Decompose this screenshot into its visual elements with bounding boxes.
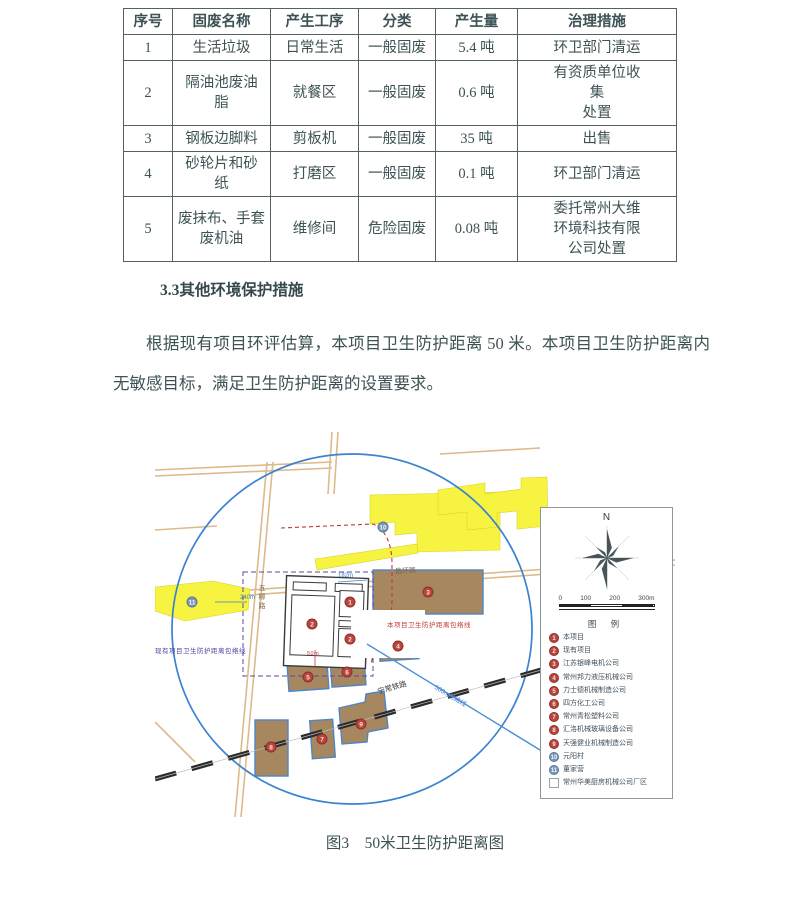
legend-item: 8汇洛机械玻璃设备公司	[549, 725, 668, 735]
table-cell: 一般固废	[359, 126, 436, 152]
legend-label: 四方化工公司	[563, 699, 605, 709]
table-header-row: 序号固废名称产生工序分类产生量治理措施	[124, 9, 677, 35]
table-row: 2隔油池废油 脂就餐区一般固废0.6 吨有资质单位收 集 处置	[124, 61, 677, 126]
railway-centerline	[155, 659, 580, 779]
map-marker-10: 10	[378, 522, 389, 533]
legend-marker-icon: 9	[549, 739, 559, 749]
table-cell: 一般固废	[359, 152, 436, 197]
legend-marker-icon: 7	[549, 712, 559, 722]
legend-title: 图 例	[541, 618, 672, 630]
table-cell: 剪板机	[271, 126, 359, 152]
legend-item: 10元阳村	[549, 752, 668, 762]
legend-marker-icon: 4	[549, 673, 559, 683]
column-header: 固废名称	[173, 9, 271, 35]
table-cell: 2	[124, 61, 173, 126]
wind-rose-icon	[572, 523, 642, 593]
table-cell: 砂轮片和砂 纸	[173, 152, 271, 197]
table-cell: 出售	[518, 126, 677, 152]
table-cell: 危险固废	[359, 197, 436, 262]
table-cell: 隔油池废油 脂	[173, 61, 271, 126]
legend-item: 3江苏银峰电机公司	[549, 659, 668, 669]
legend-label: 江苏银峰电机公司	[563, 659, 619, 669]
legend-label: 力士德机械制造公司	[563, 686, 626, 696]
section-3-3-heading: 3.3其他环境保护措施	[160, 278, 794, 300]
table-cell: 0.08 吨	[436, 197, 518, 262]
legend-marker-icon: 8	[549, 725, 559, 735]
map-marker-5: 5	[303, 672, 314, 683]
legend-label: 常州华美厨房机械公司厂区	[563, 778, 647, 788]
legend-item: 5力士德机械制造公司	[549, 686, 668, 696]
scale-tick: 300m	[638, 595, 654, 602]
table-cell: 环卫部门清运	[518, 152, 677, 197]
legend-label: 汇洛机械玻璃设备公司	[563, 725, 633, 735]
solid-waste-table: 序号固废名称产生工序分类产生量治理措施 1生活垃圾日常生活一般固废5.4 吨环卫…	[123, 8, 677, 262]
legend-list: 1本项目2现有项目3江苏银峰电机公司4常州邦力液压机械公司5力士德机械制造公司6…	[541, 633, 672, 788]
north-label: N	[541, 512, 672, 523]
table-cell: 有资质单位收 集 处置	[518, 61, 677, 126]
table-cell: 0.6 吨	[436, 61, 518, 126]
legend-marker-icon: 11	[549, 765, 559, 775]
legend-marker-icon: 10	[549, 752, 559, 762]
legend-label: 天强健业机械制造公司	[563, 739, 633, 749]
legend-item: 1本项目	[549, 633, 668, 643]
map-marker-7: 7	[317, 734, 328, 745]
legend-marker-icon: 5	[549, 686, 559, 696]
table-cell: 4	[124, 152, 173, 197]
table-cell: 打磨区	[271, 152, 359, 197]
protection-distance-map: 昌环路 五柳路 宁常铁路 500m包络线 本项目卫生防护距离包络线 现有项目卫生…	[155, 432, 675, 817]
table-cell: 5.4 吨	[436, 35, 518, 61]
white-label-box	[351, 610, 425, 658]
table-cell: 日常生活	[271, 35, 359, 61]
column-header: 分类	[359, 9, 436, 35]
section-3-3-paragraph: 根据现有项目环评估算，本项目卫生防护距离 50 米。本项目卫生防护距离内无敏感目…	[113, 324, 710, 404]
table-cell: 3	[124, 126, 173, 152]
legend-label: 常州邦力液压机械公司	[563, 673, 633, 683]
map-marker-4: 4	[393, 641, 404, 652]
scale-bar: 0 100 200 300m	[559, 595, 655, 610]
legend-label: 常州青松塑料公司	[563, 712, 619, 722]
table-cell: 环卫部门清运	[518, 35, 677, 61]
column-header: 产生工序	[271, 9, 359, 35]
legend-item: 9天强健业机械制造公司	[549, 739, 668, 749]
legend-item: 11董家营	[549, 765, 668, 775]
map-marker-1: 1	[345, 597, 356, 608]
document-page: 序号固废名称产生工序分类产生量治理措施 1生活垃圾日常生活一般固废5.4 吨环卫…	[0, 8, 794, 909]
legend-marker-icon: 3	[549, 659, 559, 669]
legend-item: 6四方化工公司	[549, 699, 668, 709]
column-header: 序号	[124, 9, 173, 35]
table-cell: 一般固废	[359, 61, 436, 126]
scale-tick: 200	[609, 595, 620, 602]
legend-label: 本项目	[563, 633, 584, 643]
table-cell: 钢板边脚料	[173, 126, 271, 152]
table-cell: 1	[124, 35, 173, 61]
map-marker-2: 2	[307, 619, 318, 630]
scale-tick: 100	[580, 595, 591, 602]
table-cell: 5	[124, 197, 173, 262]
table-cell: 生活垃圾	[173, 35, 271, 61]
legend-label: 董家营	[563, 765, 584, 775]
table-row: 1生活垃圾日常生活一般固废5.4 吨环卫部门清运	[124, 35, 677, 61]
map-legend-panel: N 0 100	[540, 507, 673, 799]
table-row: 4砂轮片和砂 纸打磨区一般固废0.1 吨环卫部门清运	[124, 152, 677, 197]
table-row: 5废抹布、手套 废机油维修间危险固废0.08 吨委托常州大维 环境科技有限 公司…	[124, 197, 677, 262]
map-marker-11: 11	[187, 597, 198, 608]
legend-label: 现有项目	[563, 646, 591, 656]
map-marker-2: 2	[345, 634, 356, 645]
figure-caption: 图3 50米卫生防护距离图	[155, 831, 675, 853]
legend-label: 元阳村	[563, 752, 584, 762]
legend-marker-icon: 6	[549, 699, 559, 709]
table-cell: 0.1 吨	[436, 152, 518, 197]
legend-square-icon	[549, 778, 559, 788]
table-cell: 就餐区	[271, 61, 359, 126]
legend-item: 常州华美厨房机械公司厂区	[549, 778, 668, 788]
map-marker-6: 6	[342, 667, 353, 678]
legend-item: 2现有项目	[549, 646, 668, 656]
table-cell: 废抹布、手套 废机油	[173, 197, 271, 262]
column-header: 产生量	[436, 9, 518, 35]
table-row: 3钢板边脚料剪板机一般固废35 吨出售	[124, 126, 677, 152]
table-cell: 一般固废	[359, 35, 436, 61]
column-header: 治理措施	[518, 9, 677, 35]
map-marker-8: 8	[266, 742, 277, 753]
table-cell: 委托常州大维 环境科技有限 公司处置	[518, 197, 677, 262]
legend-item: 4常州邦力液压机械公司	[549, 673, 668, 683]
scale-tick: 0	[559, 595, 563, 602]
legend-marker-icon: 1	[549, 633, 559, 643]
map-marker-9: 9	[356, 719, 367, 730]
legend-item: 7常州青松塑料公司	[549, 712, 668, 722]
map-marker-3: 3	[423, 587, 434, 598]
legend-marker-icon: 2	[549, 646, 559, 656]
table-cell: 35 吨	[436, 126, 518, 152]
table-cell: 维修间	[271, 197, 359, 262]
